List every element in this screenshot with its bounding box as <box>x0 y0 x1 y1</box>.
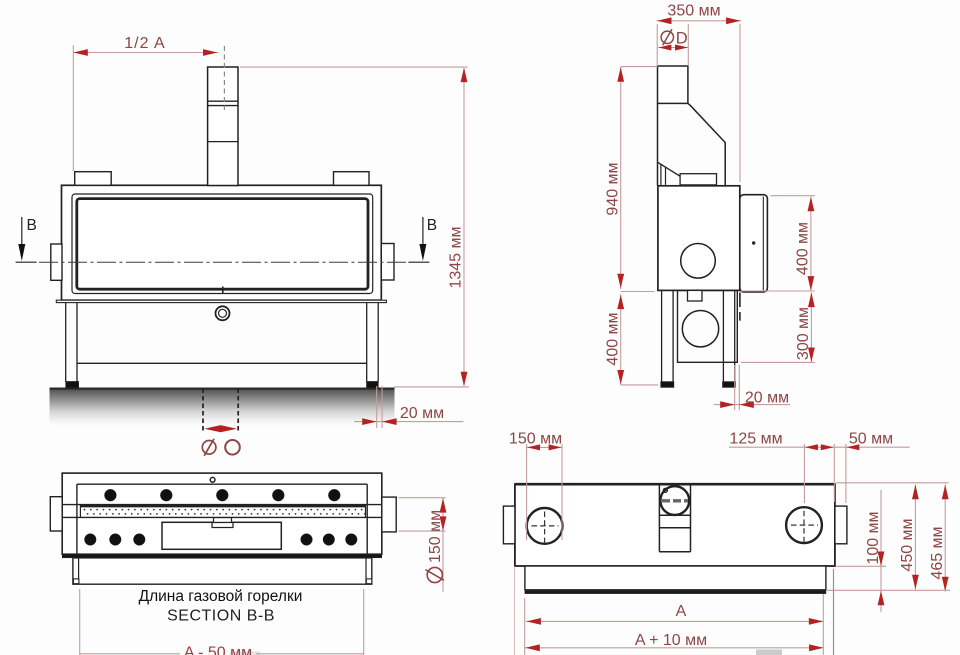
svg-text:465 мм: 465 мм <box>929 526 946 579</box>
svg-text:150 мм: 150 мм <box>509 431 562 448</box>
svg-text:125 мм: 125 мм <box>729 431 782 448</box>
svg-text:A - 50 мм: A - 50 мм <box>184 645 252 655</box>
svg-text:100 мм: 100 мм <box>865 511 882 564</box>
svg-text:A + 10 мм: A + 10 мм <box>635 632 707 649</box>
svg-text:A: A <box>676 603 687 620</box>
svg-text:20 мм: 20 мм <box>400 405 444 422</box>
svg-text:50 мм: 50 мм <box>849 431 893 448</box>
svg-text:SECTION B-B: SECTION B-B <box>167 608 275 625</box>
svg-text:150 мм: 150 мм <box>427 510 444 563</box>
svg-text:940 мм: 940 мм <box>604 162 621 215</box>
svg-text:450 мм: 450 мм <box>899 518 916 571</box>
svg-text:20 мм: 20 мм <box>745 390 789 407</box>
svg-text:400 мм: 400 мм <box>604 312 621 365</box>
svg-text:1/2 A: 1/2 A <box>124 35 165 52</box>
svg-text:D: D <box>676 30 688 48</box>
svg-text:1345 мм: 1345 мм <box>448 226 465 288</box>
svg-text:400 мм: 400 мм <box>795 222 812 275</box>
svg-text:B: B <box>27 217 37 234</box>
svg-text:Длина газовой горелки: Длина газовой горелки <box>139 588 303 605</box>
svg-text:B: B <box>427 217 437 234</box>
svg-text:350 мм: 350 мм <box>667 3 720 20</box>
svg-text:300 мм: 300 мм <box>795 307 812 360</box>
